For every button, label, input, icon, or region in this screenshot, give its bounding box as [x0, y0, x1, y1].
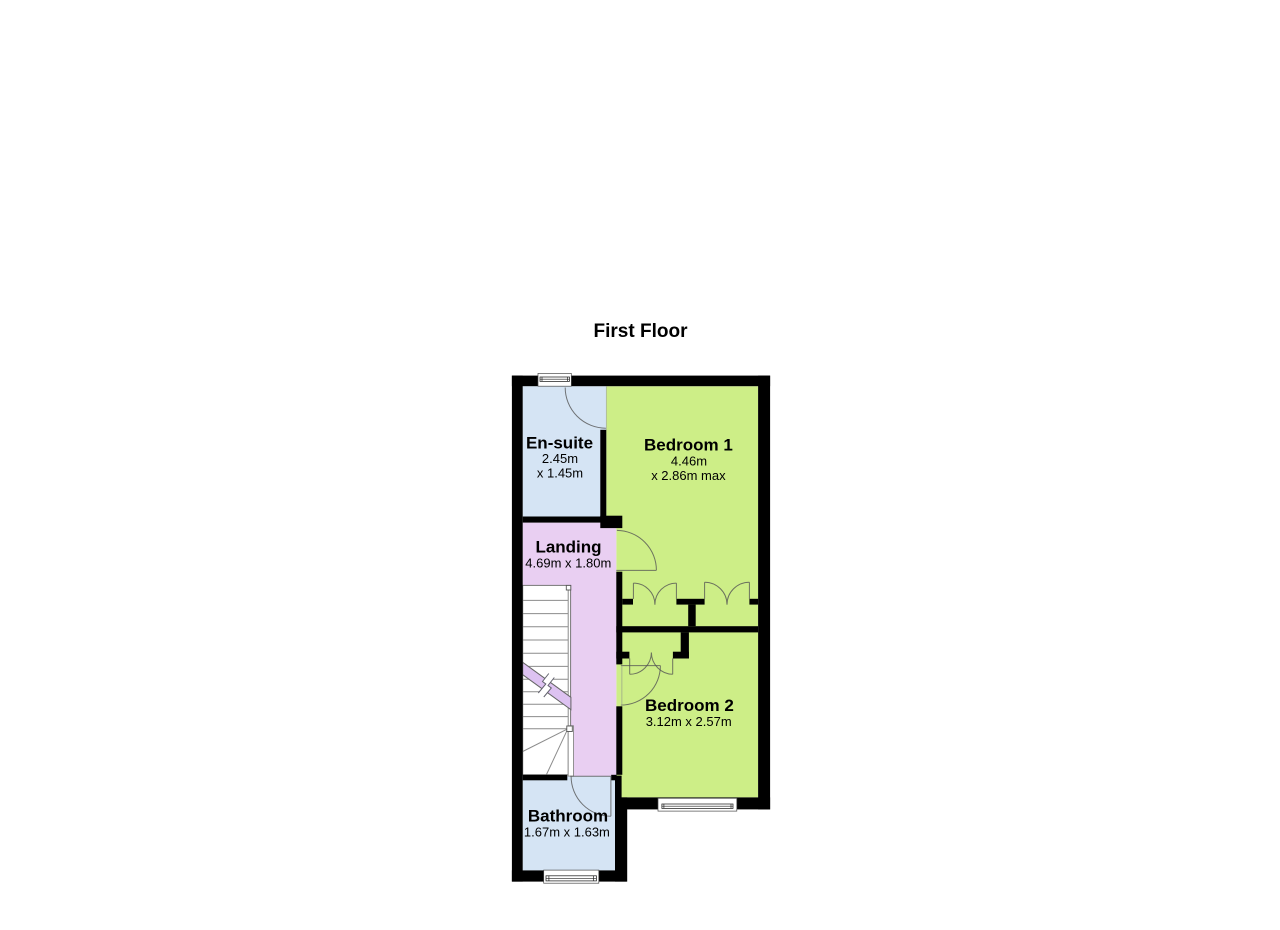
svg-text:En-suite: En-suite [526, 434, 593, 453]
svg-text:1.67m x 1.63m: 1.67m x 1.63m [524, 824, 610, 839]
svg-text:Bedroom 2: Bedroom 2 [645, 696, 734, 715]
svg-text:3.12m x 2.57m: 3.12m x 2.57m [646, 714, 732, 729]
svg-text:Landing: Landing [535, 538, 601, 557]
svg-text:4.69m x 1.80m: 4.69m x 1.80m [525, 556, 611, 571]
svg-text:4.46m: 4.46m [671, 454, 707, 469]
svg-text:x 1.45m: x 1.45m [537, 465, 583, 480]
svg-text:Bathroom: Bathroom [528, 807, 608, 826]
svg-text:2.45m: 2.45m [542, 451, 578, 466]
svg-text:x 2.86m max: x 2.86m max [651, 468, 726, 483]
svg-text:First Floor: First Floor [594, 321, 689, 342]
svg-text:Bedroom 1: Bedroom 1 [644, 436, 733, 455]
